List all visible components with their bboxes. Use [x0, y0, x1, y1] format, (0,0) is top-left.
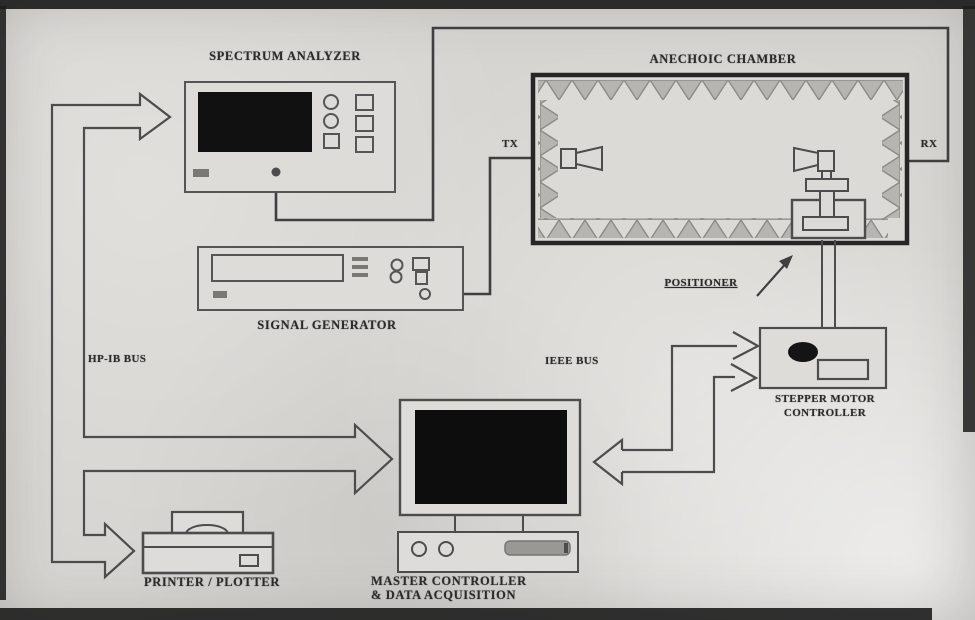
stepper-motor-controller — [760, 328, 886, 388]
stepper-label-line1: STEPPER MOTOR — [744, 392, 906, 406]
spectrum-analyzer — [185, 82, 395, 192]
chamber-wedges-left — [538, 100, 558, 218]
positioner-inner-bar — [803, 217, 848, 230]
printer-tray — [172, 512, 243, 535]
positioner-cross-bar — [806, 179, 848, 191]
sa-input-connector — [272, 168, 281, 177]
diagram-drawing — [0, 0, 975, 620]
tx-label: TX — [496, 138, 524, 150]
sa-badge — [193, 169, 209, 177]
positioner-label: POSITIONER — [642, 277, 760, 289]
master-controller — [398, 400, 580, 572]
sg-vent-2 — [352, 265, 368, 269]
anechoic-chamber-label: ANECHOIC CHAMBER — [613, 52, 833, 67]
signal-generator-label: SIGNAL GENERATOR — [217, 318, 437, 333]
printer-plotter — [143, 512, 273, 573]
positioner-pointer-arrow — [757, 255, 793, 296]
stepper-motor-controller-label: STEPPER MOTOR CONTROLLER — [744, 392, 906, 420]
positioner-shaft — [822, 240, 835, 328]
stepper-label-line2: CONTROLLER — [744, 406, 906, 420]
spectrum-analyzer-label: SPECTRUM ANALYZER — [175, 49, 395, 64]
anechoic-chamber — [533, 75, 907, 243]
rx-label: RX — [912, 138, 946, 150]
sg-vent-1 — [352, 257, 368, 261]
chamber-wedges-right — [882, 100, 902, 218]
master-right-arrowhead — [594, 440, 622, 484]
hpib-bus-label: HP-IB BUS — [88, 353, 198, 365]
scanned-diagram-page: SPECTRUM ANALYZER ANECHOIC CHAMBER TX RX… — [0, 0, 975, 620]
master-controller-label: MASTER CONTROLLER & DATA ACQUISITION — [371, 574, 603, 602]
positioner-column — [820, 191, 834, 217]
sg-badge — [213, 291, 227, 298]
monitor-screen — [415, 410, 567, 504]
master-label-line2: & DATA ACQUISITION — [371, 588, 603, 602]
ieee-bus-label: IEEE BUS — [545, 355, 645, 367]
rx-feed — [818, 151, 834, 171]
signal-generator — [198, 247, 463, 310]
tx-feed — [561, 149, 576, 168]
chamber-wedges-top — [538, 80, 903, 100]
printer-plotter-label: PRINTER / PLOTTER — [112, 575, 312, 590]
ieee-line-lower — [622, 377, 735, 472]
signal-generator-box — [198, 247, 463, 310]
positioner-rod — [822, 171, 831, 179]
unit-drive-tick — [564, 543, 568, 553]
master-label-line1: MASTER CONTROLLER — [371, 574, 603, 588]
unit-drive-slot — [505, 541, 570, 555]
spectrum-analyzer-screen — [198, 92, 312, 152]
stepper-knob — [788, 342, 818, 362]
sg-vent-3 — [352, 273, 368, 277]
